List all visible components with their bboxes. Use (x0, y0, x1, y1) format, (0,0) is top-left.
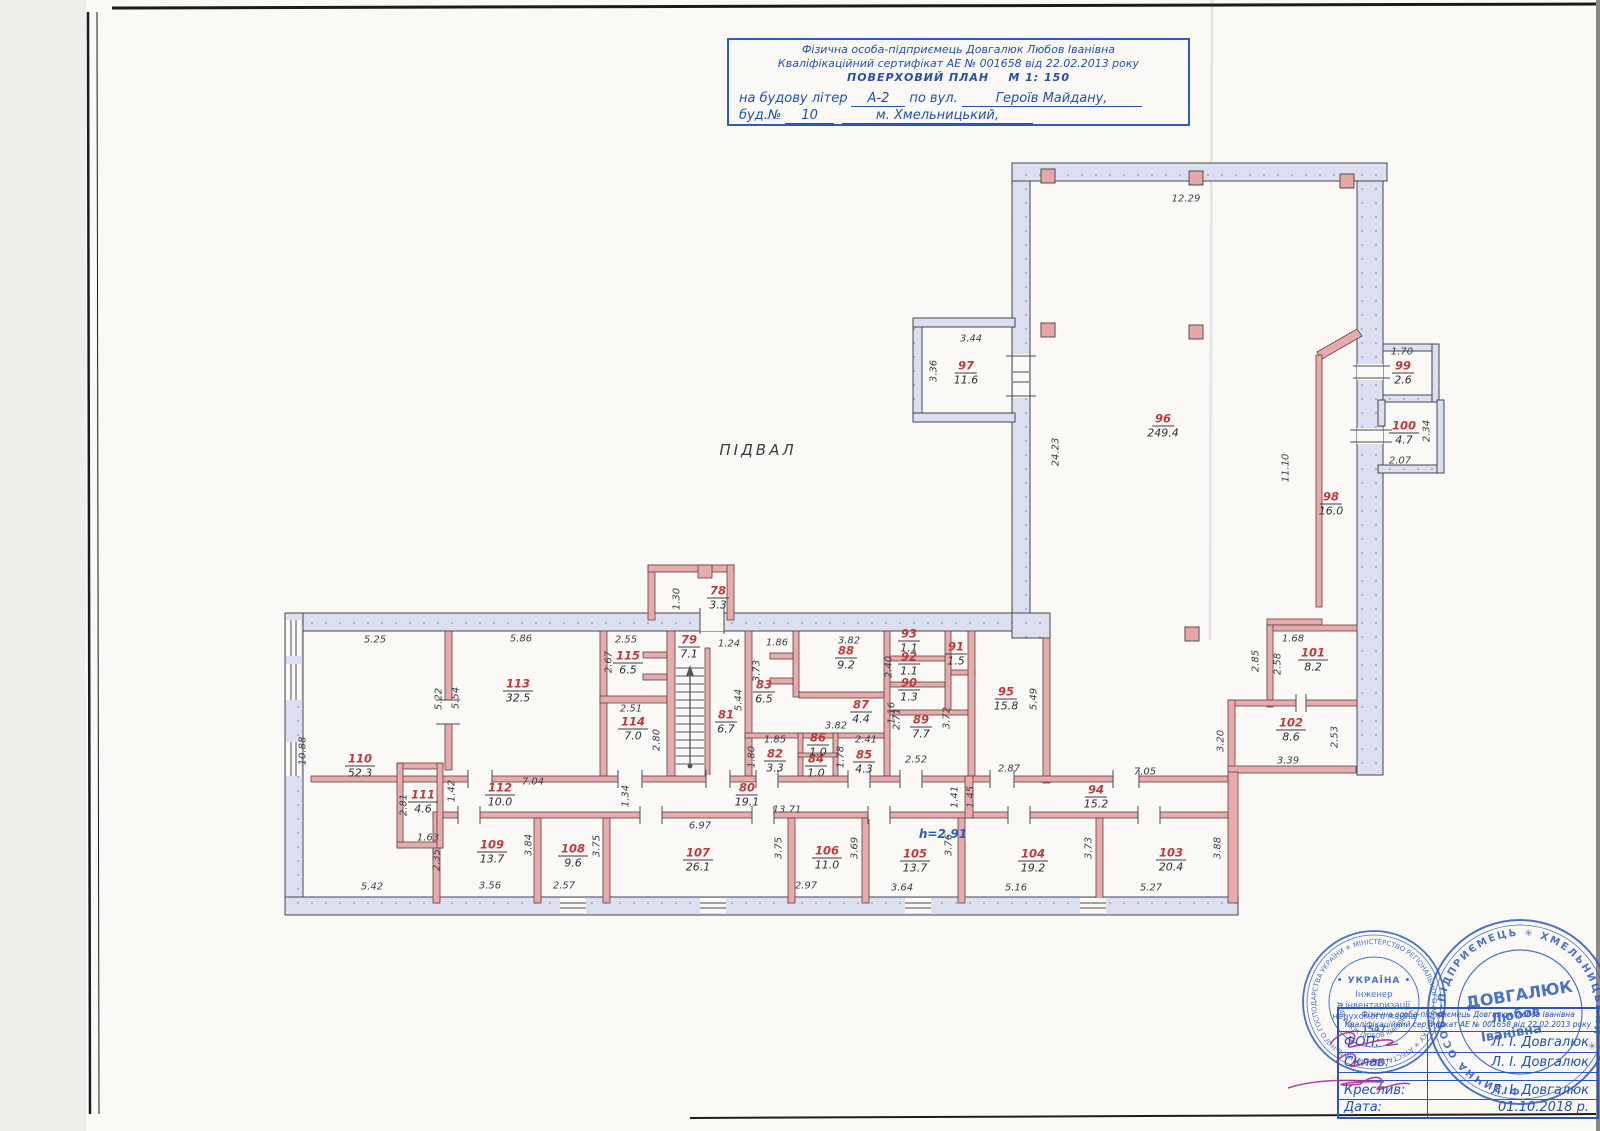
svg-text:з інвентаризації: з інвентаризації (1338, 1001, 1411, 1011)
svg-text:Іванівна: Іванівна (1480, 1021, 1543, 1045)
scanned-floor-plan-page: 96249.49711.69816.0992.61004.71018.21028… (0, 0, 1600, 1131)
svg-text:1547: 1547 (1362, 1025, 1386, 1035)
svg-text:• УКРАЇНА •: • УКРАЇНА • (1337, 975, 1411, 986)
svg-text:ДОВГАЛЮК ЛЮБОВ ІВАНІВНА ✳ КВАЛ: ДОВГАЛЮК ЛЮБОВ ІВАНІВНА ✳ КВАЛІФІКАЦІЙНИ… (0, 0, 1412, 1040)
fop-dovhaliuk-stamp: ФІЗИЧНА ОСОБА-ПІДПРИЄМЕЦЬ ✳ ХМЕЛЬНИЦЬКИЙ… (1428, 920, 1600, 1104)
inventory-engineer-stamp: КОМУНАЛЬНОГО ГОСПОДАРСТВА УКРАЇНИ ✳ МІНІ… (0, 0, 1445, 1073)
svg-text:Інженер: Інженер (1355, 990, 1392, 1000)
stamps-layer: КОМУНАЛЬНОГО ГОСПОДАРСТВА УКРАЇНИ ✳ МІНІ… (0, 0, 1600, 1131)
svg-text:нерухомого майна: нерухомого майна (1332, 1012, 1415, 1022)
svg-text:КОМУНАЛЬНОГО ГОСПОДАРСТВА УКРА: КОМУНАЛЬНОГО ГОСПОДАРСТВА УКРАЇНИ ✳ МІНІ… (0, 0, 1438, 1067)
